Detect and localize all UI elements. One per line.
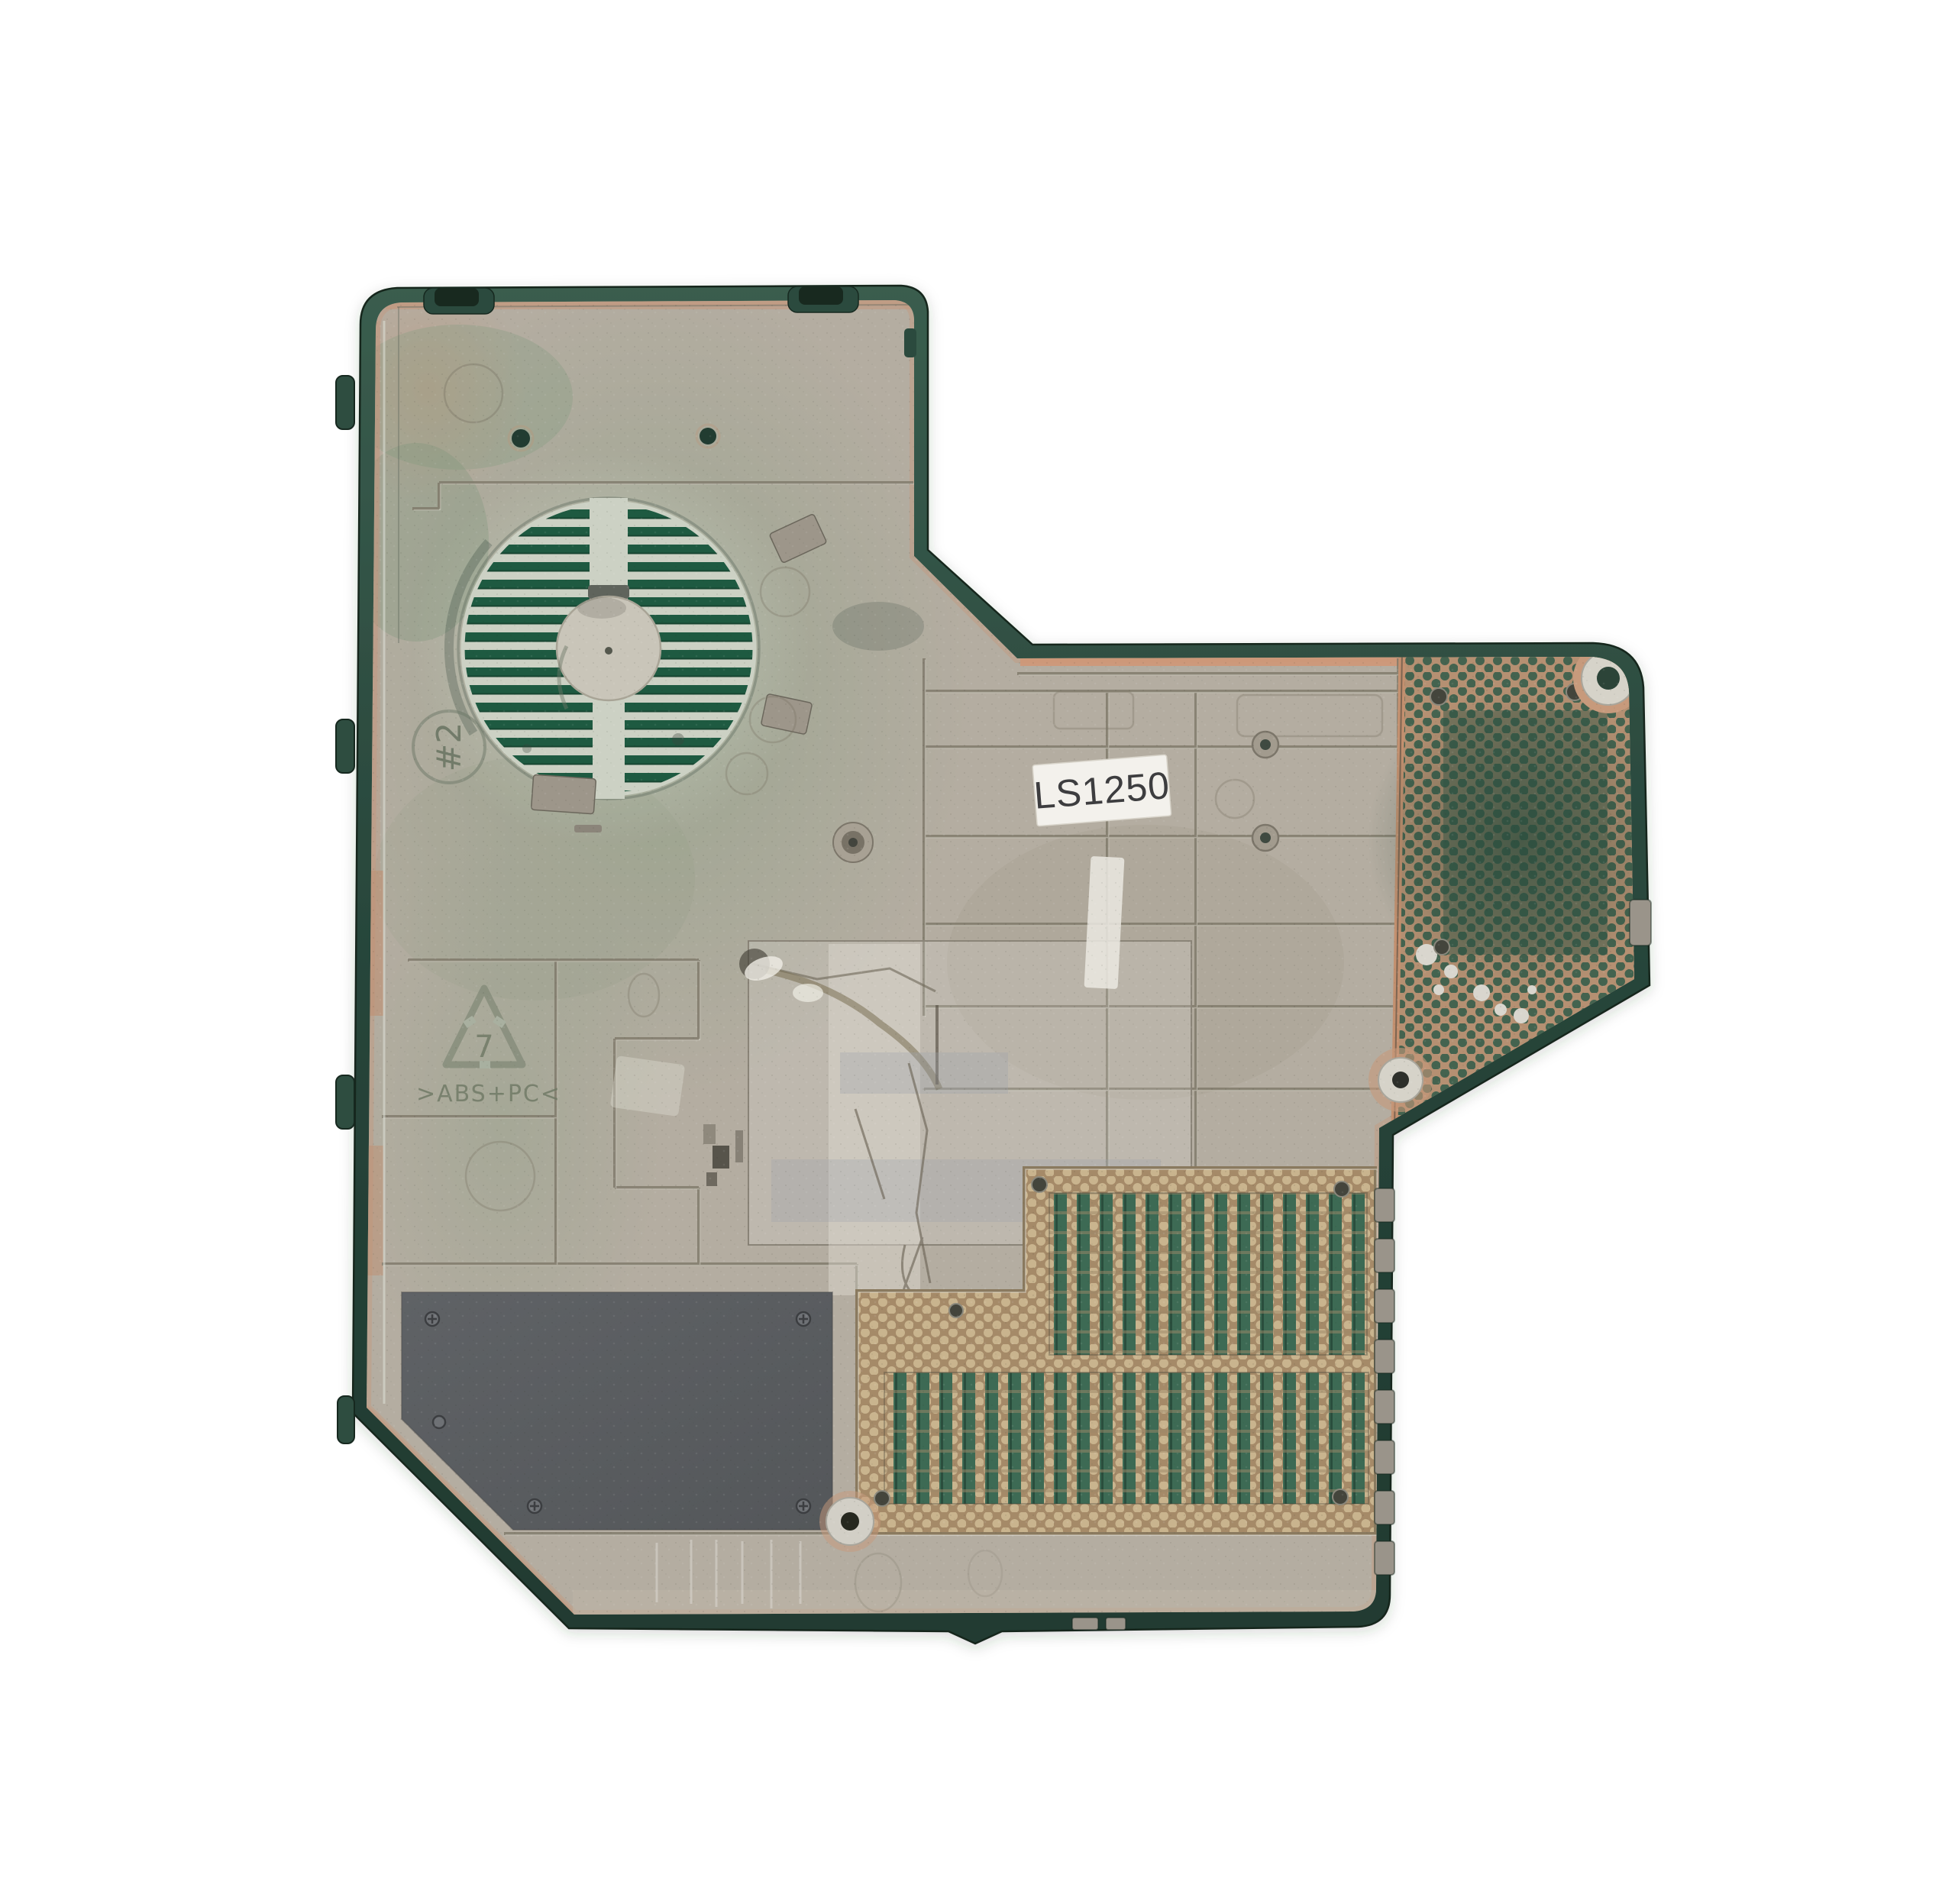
laptop-bottom-cover-photo: #2 7 >ABS+PC<: [0, 0, 1955, 1904]
grain-overlay: [328, 267, 1672, 1650]
plate-interior: #2 7 >ABS+PC<: [328, 267, 1672, 1650]
left-edge-tabs: [336, 376, 354, 1443]
product-photo-canvas: #2 7 >ABS+PC<: [0, 0, 1955, 1904]
label-sticker: LS1250: [1032, 755, 1172, 826]
